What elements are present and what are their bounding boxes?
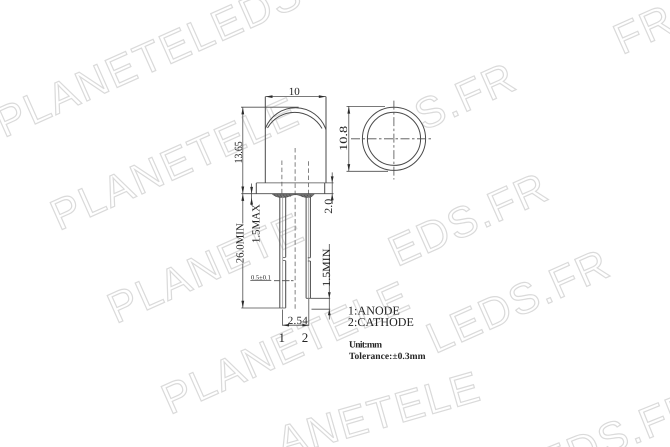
svg-text:Tolerance:±0.3mm: Tolerance:±0.3mm: [349, 352, 426, 362]
svg-text:10.8: 10.8: [338, 125, 350, 151]
svg-text:2.54: 2.54: [288, 315, 309, 327]
svg-text:10: 10: [289, 86, 301, 98]
svg-text:Unit:mm: Unit:mm: [349, 341, 382, 351]
svg-text:26.0MIN: 26.0MIN: [234, 223, 246, 263]
svg-text:FR: FR: [607, 0, 670, 64]
svg-text:LEDS.FR: LEDS.FR: [420, 240, 618, 363]
svg-text:1: 1: [279, 330, 286, 345]
svg-text:EDS.FR: EDS.FR: [532, 381, 670, 447]
svg-text:13.65: 13.65: [233, 141, 245, 163]
svg-text:1.5MAX: 1.5MAX: [250, 204, 262, 243]
svg-text:S.FR: S.FR: [408, 53, 524, 140]
svg-text:ANETELE: ANETELE: [272, 363, 487, 447]
svg-text:2.0: 2.0: [323, 198, 335, 214]
svg-text:2:CATHODE: 2:CATHODE: [348, 315, 414, 329]
svg-text:1.5MIN: 1.5MIN: [321, 249, 333, 287]
svg-text:EDS.FR: EDS.FR: [382, 163, 557, 276]
svg-text:2: 2: [302, 330, 309, 345]
